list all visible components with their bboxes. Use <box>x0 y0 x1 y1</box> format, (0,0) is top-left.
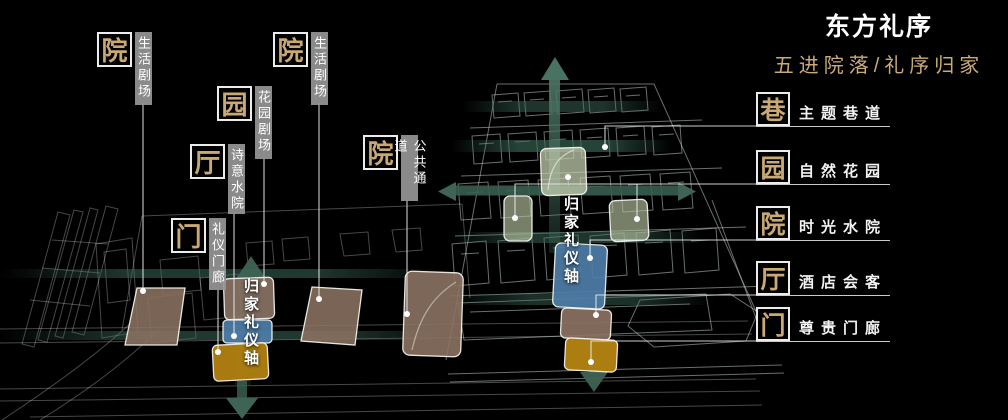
callout-label-bar: 公共通道 <box>401 135 418 201</box>
marker-dot <box>512 215 518 221</box>
legend-key-char: 院 <box>760 205 785 241</box>
axis-arrow-right-icon <box>678 182 696 201</box>
callout-label-text: 诗意水院 <box>227 144 246 214</box>
legend-key-box: 巷 <box>756 92 790 126</box>
marker-dot <box>316 296 322 302</box>
page-subtitle: 五进院落/礼序归家 <box>752 49 1006 78</box>
marker-dot <box>140 288 146 294</box>
legend-label-text: 时光水院 <box>799 216 887 240</box>
legend-label-text: 酒店会客 <box>799 271 887 295</box>
marker-dot <box>231 333 237 339</box>
axis-arrow-down-icon <box>580 372 608 392</box>
callout-label-court-3: 院 公共通道 <box>363 135 418 201</box>
legend-key-char: 园 <box>760 149 785 185</box>
callout-label-text: 礼仪门廊 <box>208 218 227 290</box>
legend-label-text: 自然花园 <box>799 160 887 184</box>
patch-life-theater-east <box>301 287 362 345</box>
slide-canvas: 东方礼序 五进院落/礼序归家 院 生活剧场 园 花园剧场 厅 诗意水院 院 生活… <box>0 0 1008 420</box>
legend-row-hall: 厅 酒店会客 <box>756 261 890 296</box>
page-title: 东方礼序 <box>752 7 1006 43</box>
callout-label-bar: 礼仪门廊 <box>209 218 226 290</box>
callout-key-char: 园 <box>221 85 247 122</box>
legend-row-garden: 园 自然花园 <box>756 150 890 185</box>
legend-key-box: 门 <box>756 307 790 341</box>
axis-arrow-up-icon <box>236 256 266 279</box>
patch-life-theater-west <box>125 288 185 345</box>
callout-label-bar: 诗意水院 <box>228 144 245 214</box>
callout-label-court-2: 院 生活剧场 <box>273 32 328 105</box>
callout-key-box: 厅 <box>190 144 225 179</box>
patch-garden-west <box>504 196 532 241</box>
callout-label-hall: 厅 诗意水院 <box>190 144 245 214</box>
axis-arrow-up-icon <box>541 57 569 80</box>
callout-label-text: 生活剧场 <box>310 32 329 105</box>
callout-key-box: 门 <box>171 218 206 253</box>
legend-row-gate: 门 尊贵门廊 <box>756 307 890 342</box>
patch-garden-east <box>609 199 649 242</box>
axis-arrow-down-icon <box>226 398 258 419</box>
legend-key-box: 院 <box>756 206 790 240</box>
marker-dot <box>593 312 599 318</box>
legend-key-char: 巷 <box>760 91 785 127</box>
legend-key-char: 门 <box>760 306 785 342</box>
marker-dot <box>404 311 410 317</box>
legend-key-box: 厅 <box>756 261 790 295</box>
right-axis-label: 归家礼仪轴 <box>560 196 581 286</box>
left-axis-label: 归家礼仪轴 <box>240 278 261 368</box>
patch-public-passage <box>403 271 464 357</box>
marker-dot <box>587 255 593 261</box>
axis-arrow-left-icon <box>438 182 456 201</box>
callout-key-box: 院 <box>97 32 132 67</box>
title-block: 东方礼序 五进院落/礼序归家 <box>752 7 1006 78</box>
legend-label-text: 主题巷道 <box>799 102 887 126</box>
callout-label-court-1: 院 生活剧场 <box>97 32 152 105</box>
axis-shaft-down <box>237 381 247 399</box>
marker-dot <box>602 144 608 150</box>
legend-key-box: 园 <box>756 150 790 184</box>
patch-hotel-lounge <box>560 308 612 341</box>
legend-row-lane: 巷 主题巷道 <box>756 92 890 127</box>
legend-label-text: 尊贵门廊 <box>799 317 887 341</box>
callout-label-text: 公共通道 <box>391 135 429 201</box>
callout-key-char: 院 <box>101 31 127 68</box>
callout-key-char: 门 <box>175 217 201 254</box>
callout-label-bar: 生活剧场 <box>135 32 152 105</box>
marker-dot <box>588 359 594 365</box>
callout-label-text: 生活剧场 <box>134 32 153 105</box>
patch-garden-center <box>540 147 587 196</box>
callout-key-char: 厅 <box>194 143 220 180</box>
legend-row-court: 院 时光水院 <box>756 206 890 241</box>
callout-label-bar: 花园剧场 <box>255 86 272 159</box>
marker-dot <box>215 349 221 355</box>
callout-key-char: 院 <box>277 31 303 68</box>
callout-label-gate: 门 礼仪门廊 <box>171 218 226 290</box>
marker-dot <box>634 216 640 222</box>
callout-label-text: 花园剧场 <box>254 86 273 159</box>
marker-dot <box>261 281 267 287</box>
callout-key-box: 院 <box>273 32 308 67</box>
callout-label-bar: 生活剧场 <box>311 32 328 105</box>
legend-key-char: 厅 <box>760 260 785 296</box>
callout-key-box: 园 <box>217 86 252 121</box>
marker-dot <box>565 174 571 180</box>
